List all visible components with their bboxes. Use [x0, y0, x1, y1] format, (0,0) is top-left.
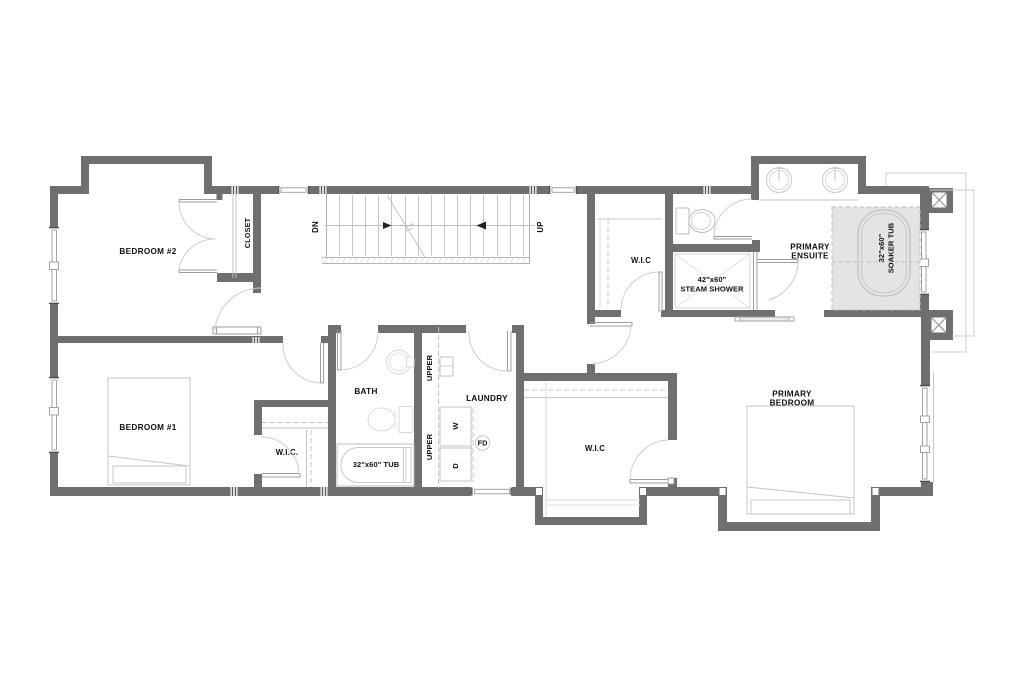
svg-text:BEDROOM #1: BEDROOM #1	[119, 423, 176, 432]
svg-text:PRIMARYENSUITE: PRIMARYENSUITE	[790, 243, 830, 261]
svg-text:BEDROOM #2: BEDROOM #2	[119, 247, 176, 256]
svg-text:UPPER: UPPER	[425, 433, 434, 460]
svg-text:FD: FD	[478, 439, 488, 448]
svg-text:BATH: BATH	[354, 387, 377, 396]
svg-text:CLOSET: CLOSET	[243, 217, 252, 248]
svg-text:W.I.C.: W.I.C.	[276, 448, 298, 457]
svg-text:W.I.C: W.I.C	[631, 256, 651, 265]
svg-text:UP: UP	[536, 221, 545, 232]
svg-text:D: D	[451, 463, 460, 469]
svg-text:UPPER: UPPER	[425, 354, 434, 381]
svg-text:32"x60" TUB: 32"x60" TUB	[353, 460, 400, 469]
svg-text:DN: DN	[311, 221, 320, 233]
svg-text:W.I.C: W.I.C	[585, 444, 605, 453]
svg-text:PRIMARYBEDROOM: PRIMARYBEDROOM	[770, 390, 815, 408]
svg-text:W: W	[451, 422, 460, 430]
svg-text:LAUNDRY: LAUNDRY	[466, 394, 508, 403]
